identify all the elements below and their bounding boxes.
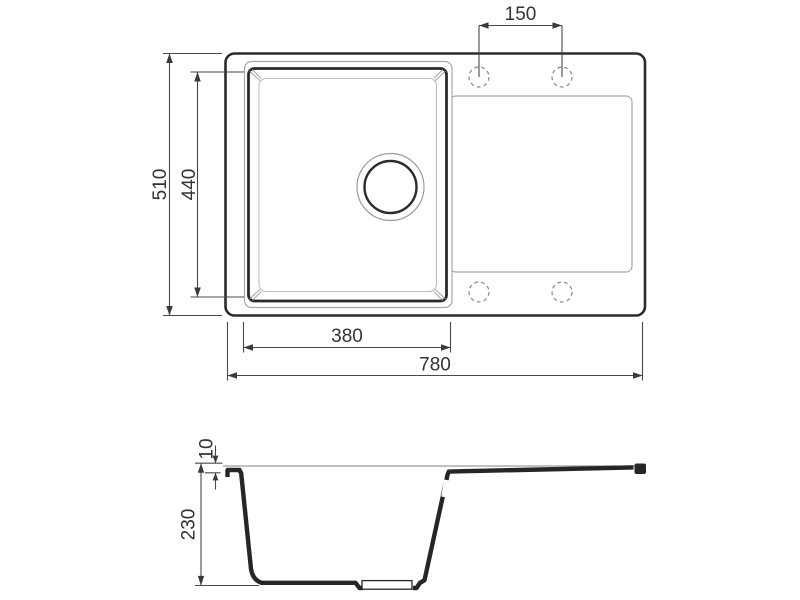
- dim-label-overall-width: 780: [419, 355, 451, 376]
- dim-bowl-width: 380: [244, 322, 451, 353]
- dim-label-edge-thickness: 10: [197, 438, 218, 459]
- top-view: [226, 54, 646, 316]
- dim-label-faucet-spacing: 150: [505, 4, 537, 25]
- dim-label-overall-depth: 510: [150, 169, 171, 201]
- dim-arrow: [441, 344, 451, 351]
- dim-arrow: [194, 288, 201, 298]
- dim-arrow: [198, 576, 204, 586]
- dim-arrow: [198, 463, 204, 473]
- dim-edge-thickness: 10: [197, 438, 221, 489]
- dim-arrow: [166, 54, 173, 64]
- dim-arrow: [553, 22, 563, 29]
- dim-label-bowl-depth: 230: [179, 509, 200, 541]
- dim-arrow: [633, 372, 643, 379]
- section-profile: [228, 467, 634, 588]
- dim-arrow: [194, 72, 201, 82]
- dim-arrow: [228, 372, 238, 379]
- section-drain-recess: [362, 581, 412, 590]
- sink-technical-drawing: 150 510 440 380 780: [0, 0, 800, 600]
- section-wall-highlight: [444, 480, 447, 497]
- dim-arrow: [479, 22, 489, 29]
- dim-arrow: [166, 306, 173, 316]
- dim-label-bowl-width: 380: [331, 326, 363, 347]
- dim-arrow: [244, 344, 254, 351]
- section-view: [223, 464, 646, 590]
- dim-label-bowl-inner-depth: 440: [179, 169, 200, 201]
- dim-arrow: [213, 473, 219, 481]
- dim-overall-width: 780: [228, 322, 643, 381]
- drainboard-outline: [450, 96, 632, 272]
- section-edge-cap: [635, 464, 647, 475]
- drain-hole-outline: [365, 161, 417, 213]
